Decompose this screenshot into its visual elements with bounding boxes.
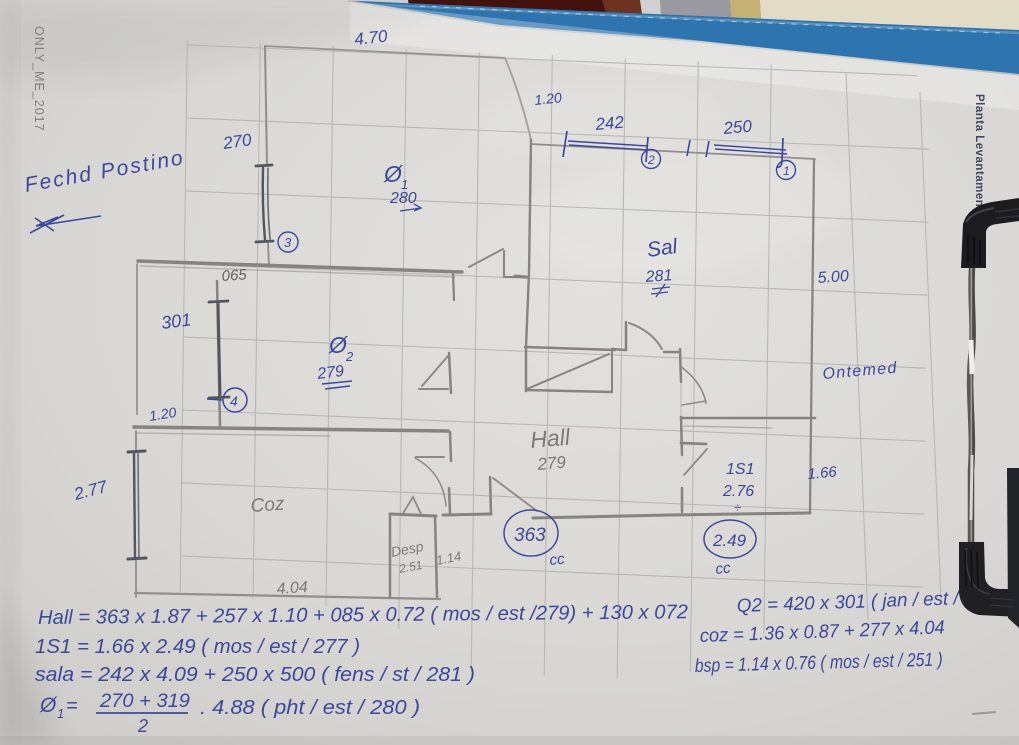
svg-text:2: 2 [647,153,655,167]
svg-text:Sal: Sal [645,235,680,262]
svg-text:sala = 242 x 4.09 + 250 x 500: sala = 242 x 4.09 + 250 x 500 ( fens / s… [35,664,475,686]
svg-text:270 + 319: 270 + 319 [99,691,191,712]
svg-text:2.49: 2.49 [712,531,747,550]
svg-text:1: 1 [57,706,64,721]
svg-text:363: 363 [514,525,546,546]
svg-text:4.70: 4.70 [353,27,388,49]
svg-text:=: = [66,695,78,717]
svg-text:ONLY_ME_2017: ONLY_ME_2017 [32,26,46,132]
svg-text:250: 250 [722,117,753,139]
svg-text:÷: ÷ [734,500,741,515]
svg-text:Ø: Ø [328,332,348,358]
svg-text:242: 242 [594,113,625,135]
svg-text:1.20: 1.20 [534,89,563,108]
svg-text:2: 2 [345,349,354,364]
svg-text:cc: cc [549,550,566,569]
svg-text:3: 3 [284,235,292,250]
svg-text:4.04: 4.04 [276,579,308,598]
svg-text:. 4.88 ( pht / est / 280 ): . 4.88 ( pht / est / 280 ) [200,697,420,719]
svg-text:1S1: 1S1 [726,461,754,478]
svg-text:280: 280 [389,190,417,207]
svg-text:Ø: Ø [39,694,58,717]
svg-text:301: 301 [160,309,192,333]
svg-text:Planta Levantamento: Planta Levantamento [973,94,985,219]
svg-text:Hall: Hall [529,424,572,453]
svg-text:1: 1 [783,164,790,178]
svg-text:281: 281 [644,267,673,286]
svg-text:1S1 = 1.66 x 2.49 ( mos / est: 1S1 = 1.66 x 2.49 ( mos / est / 277 ) [35,636,360,658]
svg-text:279: 279 [315,363,345,383]
svg-text:cc: cc [715,559,732,578]
svg-text:279: 279 [536,453,567,475]
svg-text:5.00: 5.00 [817,268,849,287]
svg-text:Ø: Ø [383,161,403,187]
svg-text:Coz: Coz [250,494,286,517]
svg-text:1.66: 1.66 [807,463,838,483]
svg-text:2.76: 2.76 [722,483,754,500]
svg-text:065: 065 [221,266,248,285]
svg-text:4: 4 [230,393,238,409]
svg-text:2: 2 [137,716,148,736]
